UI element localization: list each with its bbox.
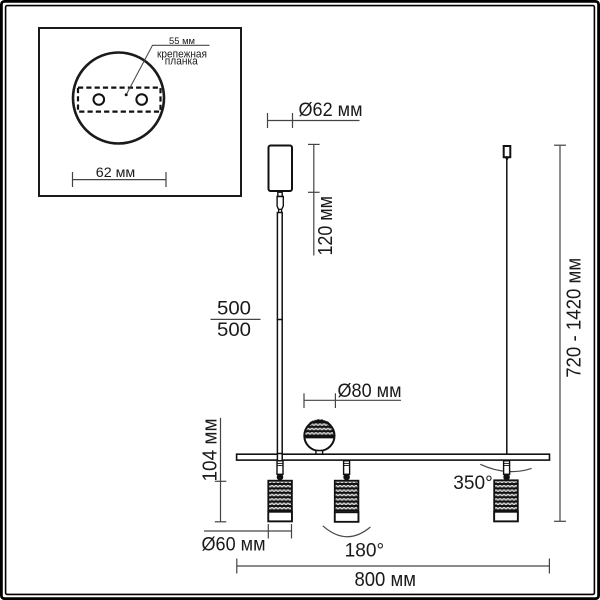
- svg-text:500: 500: [217, 298, 251, 320]
- svg-text:планка: планка: [165, 56, 198, 68]
- svg-text:120 мм: 120 мм: [314, 196, 337, 256]
- svg-text:104 мм: 104 мм: [199, 419, 222, 482]
- svg-text:62 мм: 62 мм: [96, 164, 136, 180]
- svg-text:Ø60 мм: Ø60 мм: [202, 535, 266, 556]
- svg-text:180°: 180°: [345, 540, 385, 562]
- svg-text:350°: 350°: [453, 472, 493, 494]
- svg-text:55 мм: 55 мм: [169, 36, 195, 46]
- svg-text:720 - 1420 мм: 720 - 1420 мм: [564, 258, 586, 378]
- svg-text:Ø80 мм: Ø80 мм: [338, 381, 402, 402]
- svg-text:800 мм: 800 мм: [354, 569, 416, 591]
- svg-text:Ø62 мм: Ø62 мм: [299, 100, 363, 121]
- svg-text:500: 500: [217, 319, 251, 341]
